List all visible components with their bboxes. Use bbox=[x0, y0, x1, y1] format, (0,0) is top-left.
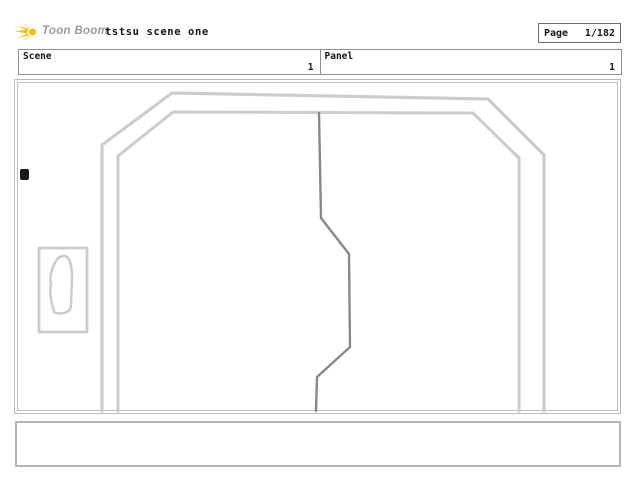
page-value: 1/182 bbox=[585, 28, 615, 39]
page-label: Page bbox=[544, 28, 568, 39]
panel-cell: Panel 1 bbox=[320, 50, 622, 74]
panel-frame bbox=[14, 79, 621, 414]
storyboard-page: Toon Boom tstsu scene one Page 1/182 Sce… bbox=[0, 0, 640, 495]
panel-frame-inner-border bbox=[17, 82, 618, 411]
panel-label: Panel bbox=[325, 51, 354, 62]
panel-number: 1 bbox=[609, 62, 615, 73]
scene-number: 1 bbox=[308, 62, 314, 73]
toonboom-logo-icon bbox=[15, 21, 39, 43]
scene-cell: Scene 1 bbox=[19, 50, 320, 74]
brand-name: Toon Boom bbox=[42, 25, 108, 37]
caption-box bbox=[15, 421, 621, 467]
scene-label: Scene bbox=[23, 51, 52, 62]
scene-panel-row: Scene 1 Panel 1 bbox=[18, 49, 622, 75]
project-title: tstsu scene one bbox=[105, 26, 209, 38]
page-number-box: Page 1/182 bbox=[538, 23, 621, 43]
